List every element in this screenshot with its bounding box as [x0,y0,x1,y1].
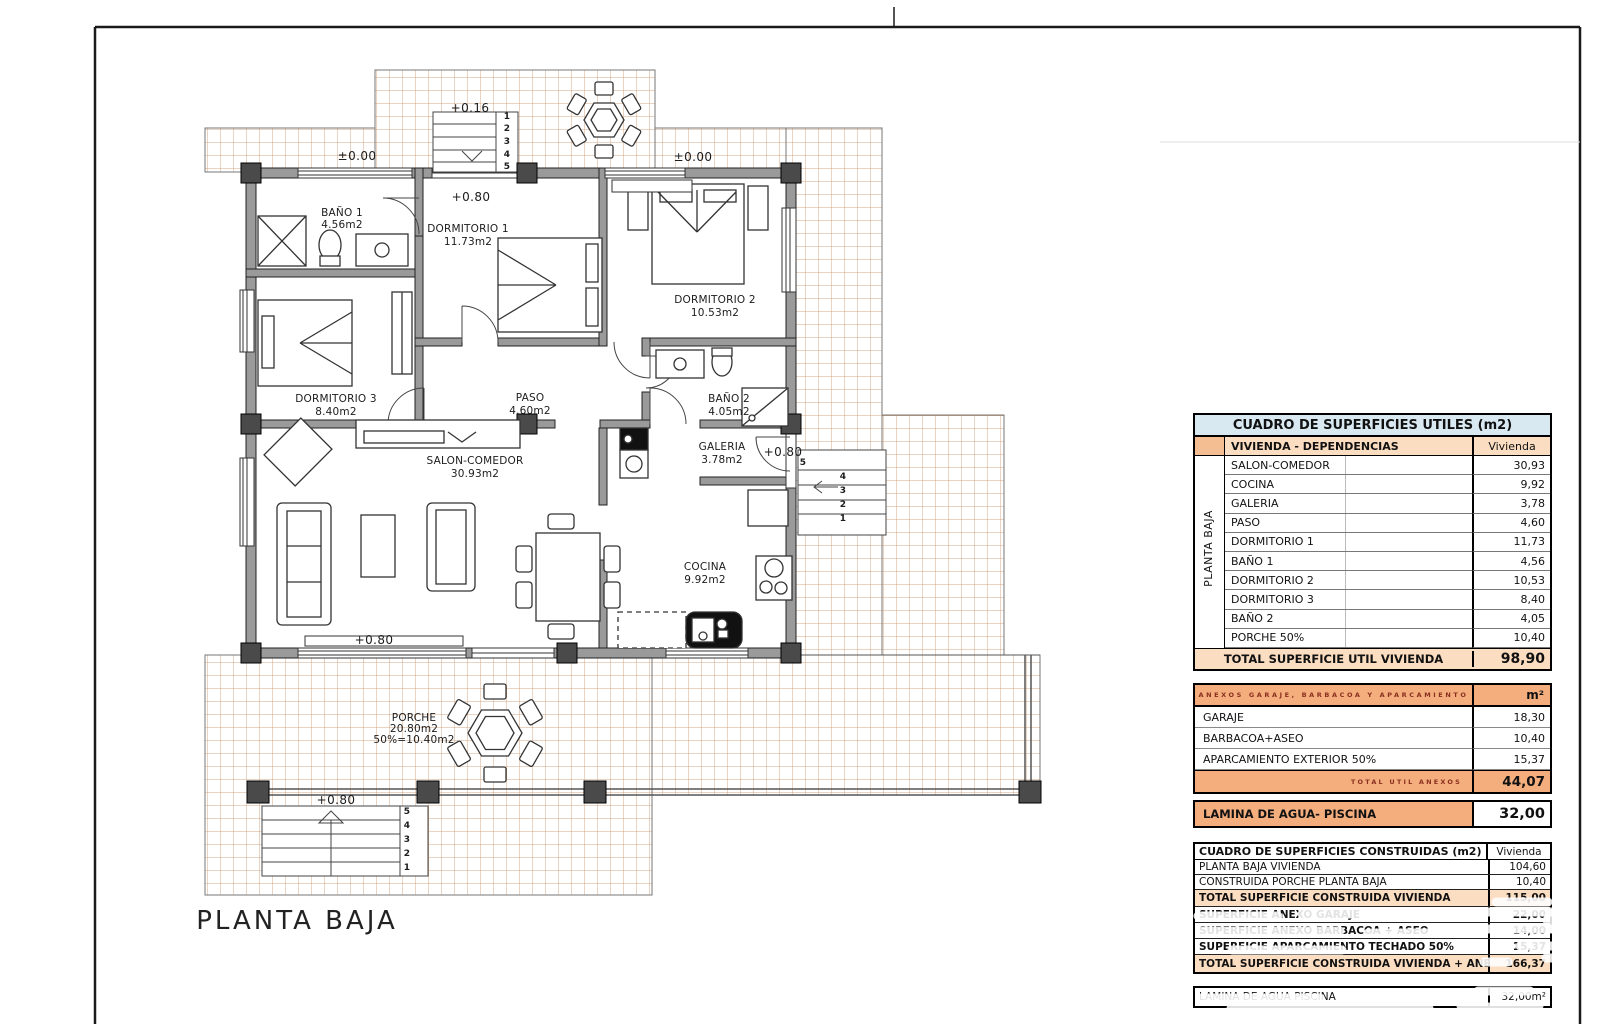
row-label: CONSTRUIDA PORCHE PLANTA BAJA [1195,876,1488,888]
plan-label: COCINA [684,561,726,573]
anexos-total-label: TOTAL UTIL ANEXOS [1195,778,1472,786]
table-row: BARBACOA+ASEO10,40 [1195,728,1550,749]
plan-label: 3 [840,486,846,496]
lamina2-value: 32,00m² [1488,988,1550,1006]
plan-label: +0.80 [764,445,803,459]
construidas-title: CUADRO DE SUPERFICIES CONSTRUIDAS (m2) [1195,845,1486,858]
anexos-total-row: TOTAL UTIL ANEXOS 44,07 [1195,770,1550,792]
row-label: DORMITORIO 3 [1225,590,1472,609]
row-side-cell [1195,610,1225,629]
row-side-cell [1195,629,1225,648]
plan-label: +0.16 [451,101,490,115]
plan-label: PASO [516,392,545,404]
row-side-cell [1195,571,1225,590]
table-row: BAÑO 24,05 [1195,610,1550,629]
row-value: 8,40 [1472,590,1550,609]
row-side-cell [1195,456,1225,475]
row-label: SALON-COMEDOR [1225,456,1472,475]
table-row: SUPERFICIE APARCAMIENTO TECHADO 50%15,37 [1195,939,1550,955]
row-value: 10,40 [1488,875,1550,889]
row-value: 10,40 [1472,629,1550,648]
anexos-unit: m² [1472,685,1550,705]
row-side-cell [1195,533,1225,552]
plan-label: 11.73m2 [444,236,492,248]
row-value: 10,40 [1472,728,1550,749]
construidas-col-header: Vivienda [1486,844,1550,859]
table-row: SUPERFICIE ANEXO GARAJE22,00 [1195,907,1550,923]
column-header: Vivienda [1472,437,1550,455]
group-header: VIVIENDA - DEPENDENCIAS [1225,437,1472,455]
plan-label: 4.56m2 [321,219,363,231]
anexos-total-value: 44,07 [1472,771,1550,792]
row-value: 3,78 [1472,494,1550,513]
row-value: 15,37 [1472,749,1550,770]
table-construidas: CUADRO DE SUPERFICIES CONSTRUIDAS (m2) V… [1193,842,1552,974]
table-row: GARAJE18,30 [1195,707,1550,728]
plan-label: +0.80 [355,633,394,647]
row-value: 10,53 [1472,571,1550,590]
row-label: GARAJE [1195,707,1472,728]
plan-label: 8.40m2 [315,406,357,418]
total-label: TOTAL SUPERFICIE UTIL VIVIENDA [1195,652,1472,666]
row-side-cell [1195,590,1225,609]
table-row: TOTAL SUPERFICIE CONSTRUIDA VIVIENDA + A… [1195,955,1550,972]
table-row: SALON-COMEDOR30,93 [1195,456,1550,475]
lamina2-label: LAMINA DE AGUA PISCINA [1195,988,1488,1006]
table-row: DORMITORIO 210,53 [1195,571,1550,590]
row-label: PLANTA BAJA VIVIENDA [1195,861,1488,873]
table-row: CONSTRUIDA PORCHE PLANTA BAJA10,40 [1195,875,1550,890]
plan-label: PLANTA BAJA [196,906,398,936]
galeria-appliances [620,428,648,478]
total-value: 98,90 [1472,651,1550,667]
row-side-cell [1195,514,1225,533]
row-value: 104,60 [1488,860,1550,874]
table-row: BAÑO 14,56 [1195,552,1550,571]
row-side-cell [1195,552,1225,571]
table-row: TOTAL SUPERFICIE CONSTRUIDA VIVIENDA115,… [1195,890,1550,907]
plan-label: 5 [800,458,806,468]
plan-label: SALON-COMEDOR [427,455,524,467]
plan-label: 30.93m2 [451,468,499,480]
table-lamina-piscina: LAMINA DE AGUA PISCINA 32,00m² [1193,986,1552,1008]
plan-label: 2 [840,500,846,510]
plan-label: 4.05m2 [708,406,750,418]
plan-label: +0.80 [452,190,491,204]
plan-label: BAÑO 1 [321,207,363,219]
plan-label: ±0.00 [338,149,377,163]
row-side-cell [1195,494,1225,513]
plan-label: 5 [504,162,510,172]
plan-label: 3.78m2 [701,454,743,466]
row-label: TOTAL SUPERFICIE CONSTRUIDA VIVIENDA [1195,892,1488,904]
plan-label: 1 [840,514,846,524]
bed-dorm1 [498,238,602,332]
table-lamina-agua: LAMINA DE AGUA- PISCINA 32,00 [1193,800,1552,828]
table-row: DORMITORIO 111,73 [1195,533,1550,552]
anexos-header: ANEXOS GARAJE, BARBACOA Y APARCAMIENTO [1195,691,1472,699]
table-group-row: VIVIENDA - DEPENDENCIAS Vivienda [1195,437,1550,456]
plan-label: +0.80 [317,793,356,807]
plan-label: 2 [504,124,510,134]
table-row: PLANTA BAJA VIVIENDA104,60 [1195,860,1550,875]
lamina-label: LAMINA DE AGUA- PISCINA [1195,802,1472,826]
table-row: PASO4,60 [1195,514,1550,533]
lamina-value: 32,00 [1472,802,1550,826]
table-superficies-utiles: CUADRO DE SUPERFICIES UTILES (m2) VIVIEN… [1193,413,1552,671]
row-label: SUPERFICIE ANEXO BARBACOA + ASEO [1195,925,1488,937]
anexos-header-row: ANEXOS GARAJE, BARBACOA Y APARCAMIENTO m… [1195,685,1550,707]
row-value: 9,92 [1472,475,1550,494]
row-label: DORMITORIO 2 [1225,571,1472,590]
plan-label: DORMITORIO 2 [674,294,756,306]
table-row: PORCHE 50%10,40 [1195,629,1550,648]
plan-label: DORMITORIO 3 [295,393,377,405]
table-body: SALON-COMEDOR30,93COCINA9,92GALERIA3,78P… [1195,456,1550,648]
row-value: 14,00 [1488,923,1550,938]
plan-label: 1 [404,863,410,873]
plan-label: 4.60m2 [509,405,551,417]
plan-label: 50%=10.40m2 [373,734,454,746]
row-label: DORMITORIO 1 [1225,533,1472,552]
construidas-header-row: CUADRO DE SUPERFICIES CONSTRUIDAS (m2) V… [1195,844,1550,860]
plan-label: 9.92m2 [684,574,726,586]
row-label: BAÑO 2 [1225,610,1472,629]
table-row: DORMITORIO 38,40 [1195,590,1550,609]
row-value: 4,05 [1472,610,1550,629]
table-row: APARCAMIENTO EXTERIOR 50%15,37 [1195,749,1550,770]
row-label: GALERIA [1225,494,1472,513]
plan-label: 1 [504,112,510,122]
plan-label: 10.53m2 [691,307,739,319]
row-value: 30,93 [1472,456,1550,475]
table-anexos: ANEXOS GARAJE, BARBACOA Y APARCAMIENTO m… [1193,683,1552,794]
row-label: TOTAL SUPERFICIE CONSTRUIDA VIVIENDA + A… [1195,958,1488,970]
plan-label: 3 [404,835,410,845]
row-label: PASO [1225,514,1472,533]
row-label: COCINA [1225,475,1472,494]
row-label: SUPERFICIE ANEXO GARAJE [1195,909,1488,921]
plan-label: GALERIA [699,441,746,453]
plan-label: 2 [404,849,410,859]
plan-label: 4 [504,150,510,160]
row-label: BARBACOA+ASEO [1195,728,1472,749]
table-row: COCINA9,92 [1195,475,1550,494]
table-title: CUADRO DE SUPERFICIES UTILES (m2) [1195,415,1550,437]
row-label: APARCAMIENTO EXTERIOR 50% [1195,749,1472,770]
row-value: 18,30 [1472,707,1550,728]
row-value: 4,60 [1472,514,1550,533]
table-row: GALERIA3,78 [1195,494,1550,513]
row-value: 22,00 [1488,907,1550,922]
anexos-body: GARAJE18,30BARBACOA+ASEO10,40APARCAMIENT… [1195,707,1550,770]
construidas-body: PLANTA BAJA VIVIENDA104,60CONSTRUIDA POR… [1195,860,1550,972]
plan-label: 4 [404,821,410,831]
plan-label: 3 [504,137,510,147]
drawing-sheet: BAÑO 14.56m2DORMITORIO 111.73m2DORMITORI… [0,0,1600,1024]
plan-label: DORMITORIO 1 [427,223,509,235]
plan-label: BAÑO 2 [708,393,750,405]
row-side-cell [1195,475,1225,494]
row-label: PORCHE 50% [1225,629,1472,648]
row-value: 4,56 [1472,552,1550,571]
row-value: 115,00 [1488,890,1550,906]
row-value: 166,37 [1488,955,1550,972]
table-row: SUPERFICIE ANEXO BARBACOA + ASEO14,00 [1195,923,1550,939]
table-total-row: TOTAL SUPERFICIE UTIL VIVIENDA 98,90 [1195,648,1550,669]
plan-label: 5 [404,807,410,817]
row-value: 15,37 [1488,939,1550,954]
plan-label: 4 [840,472,846,482]
row-label: BAÑO 1 [1225,552,1472,571]
group-side-cell [1195,437,1225,455]
row-label: SUPERFICIE APARCAMIENTO TECHADO 50% [1195,941,1488,953]
row-value: 11,73 [1472,533,1550,552]
plan-label: ±0.00 [674,150,713,164]
